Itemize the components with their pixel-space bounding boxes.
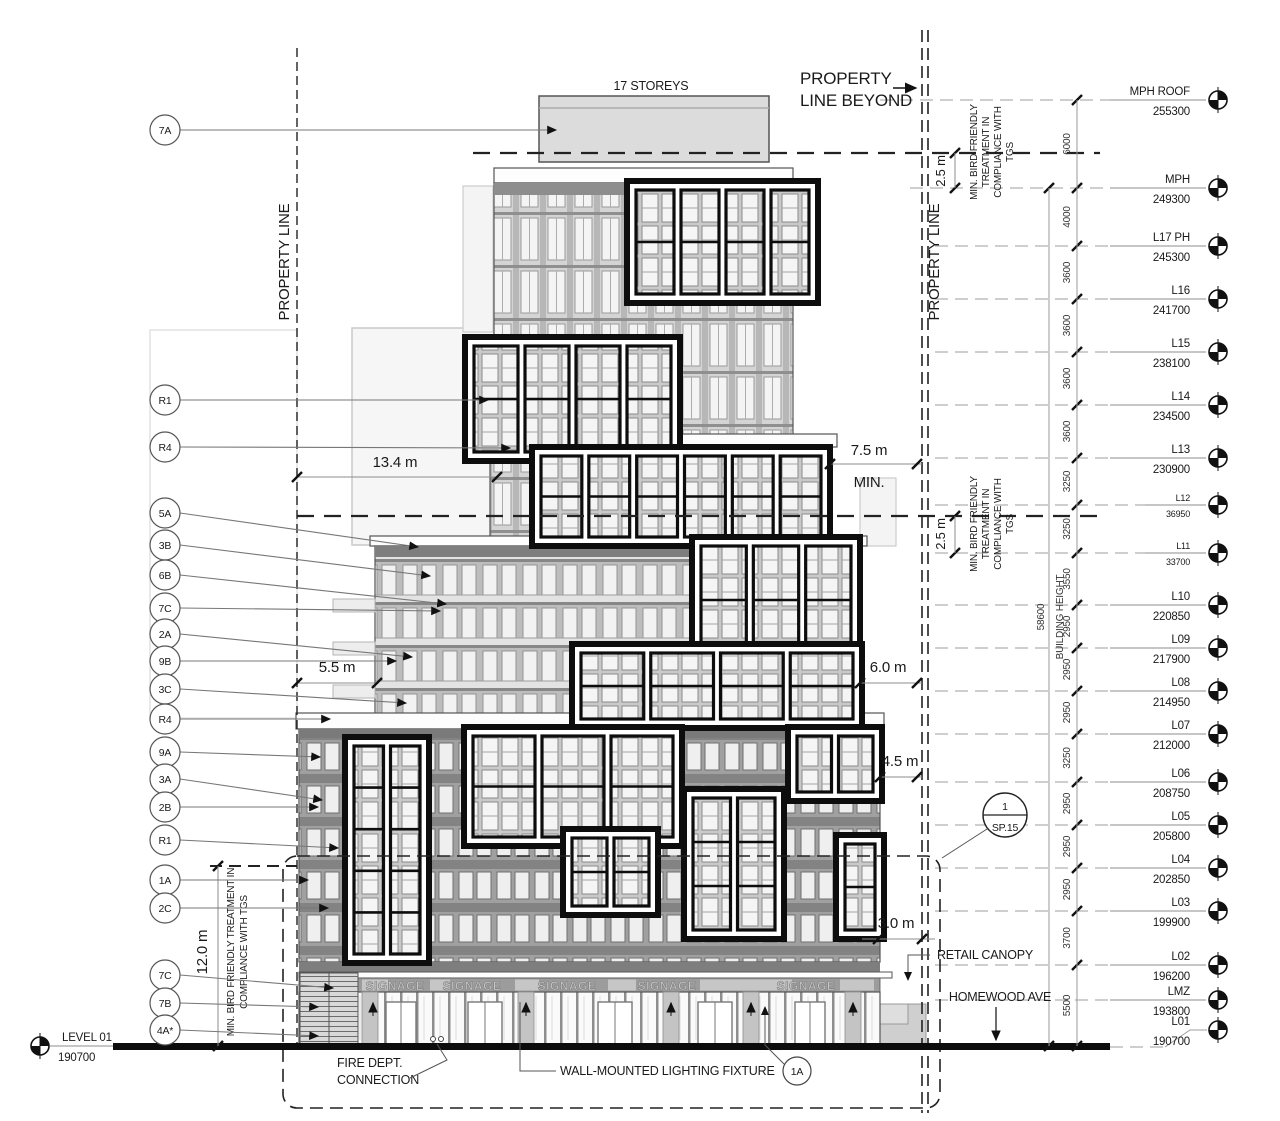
level-elevation: 249300 [1153,194,1190,206]
callout-label: 7C [158,970,172,982]
building-height-value: 58600 [1036,603,1047,630]
level-target-symbol [1209,233,1227,259]
callout-label: 3C [158,684,172,696]
level-elevation: 241700 [1153,305,1190,317]
level-target-symbol [1209,445,1227,471]
feature-frame-panel [693,798,731,930]
floor-dim: 3700 [1062,927,1073,949]
bird-note-mid-4: TGS [1005,513,1016,533]
signage-text: SIGNAGE [777,979,836,993]
floor-dim: 3600 [1062,261,1073,283]
level-elevation: 36950 [1166,509,1190,519]
level-target-symbol [1209,635,1227,661]
section-ref-sheet: SP.15 [992,822,1019,834]
property-line-left-label: PROPERTY LINE [276,203,293,320]
level-elevation: 220850 [1153,611,1190,623]
signage-text: SIGNAGE [638,979,697,993]
feature-frame-panel [839,736,874,792]
bird-note-top-3: COMPLIANCE WITH [993,106,1004,197]
level-target-symbol [1209,987,1227,1013]
dim-13-4: 13.4 m [373,454,418,471]
level-target-symbol [1209,492,1227,518]
level-name: L01 [1171,1016,1190,1028]
bird-note-mid-1: MIN. BIRD FRIENDLY [969,476,980,572]
dim-3-0: 3.0 m [878,915,915,932]
storefront-pier [845,992,861,1047]
level-target-symbol [1209,1017,1227,1043]
signage-light-panel [608,980,636,991]
callout-label: 3A [159,774,172,786]
level-name: L06 [1171,768,1190,780]
level-elevation: 205800 [1153,831,1190,843]
floor-dim: 3600 [1062,420,1073,442]
dim-6-0: 6.0 m [870,659,907,676]
signage-light-panel [515,980,539,991]
level-name: L15 [1171,338,1190,350]
mph-roof-box [539,96,769,162]
feature-frame-panel [354,746,384,954]
level-target-symbol [1209,286,1227,312]
level-name: L13 [1171,444,1190,456]
floor-dim: 3250 [1062,470,1073,492]
level-elevation: 196200 [1153,971,1190,983]
ground-line [113,1043,1110,1050]
balcony-rail [333,685,375,698]
level-target-symbol [1209,392,1227,418]
callout-label: 5A [159,508,172,520]
level-target-symbol [1209,855,1227,881]
retail-canopy-leader [908,955,930,980]
callout-label: 2C [158,903,172,915]
wall-light-label: WALL-MOUNTED LIGHTING FIXTURE [560,1064,775,1078]
dim-2-5-top: 2.5 m [933,155,948,187]
property-line-beyond-label-1: PROPERTY [800,69,892,88]
callout-label: 7C [158,603,172,615]
level-name: L04 [1171,854,1190,866]
fire-dept-label-1: FIRE DEPT. [337,1056,402,1070]
storefront-pier [362,992,378,1047]
level-name: MPH ROOF [1130,86,1191,98]
callout-label: 3B [159,540,172,552]
level-name: L08 [1171,677,1190,689]
level-elevation: 230900 [1153,464,1190,476]
signage-text: SIGNAGE [443,979,502,993]
ghost-balcony [463,186,493,332]
feature-frame-panel [738,798,776,930]
bottom-callout-label: 1A [791,1066,804,1078]
storefront-pier [663,992,679,1047]
building-height-label: BUILDING HEIGHT [1055,575,1066,660]
floor-dim: 3250 [1062,518,1073,540]
level-name: L03 [1171,897,1190,909]
level-elevation: 208750 [1153,788,1190,800]
callout-label: 2B [159,802,172,814]
callout-label: 4A* [157,1025,173,1037]
level01-name: LEVEL 01 [62,1032,112,1044]
callout-label: 9B [159,656,172,668]
floor-dim: 3250 [1062,747,1073,769]
level-elevation: 217900 [1153,654,1190,666]
fire-dept-connection-symbol [439,1037,444,1042]
level-elevation: 202850 [1153,874,1190,886]
property-line-beyond-label-2: LINE BEYOND [800,91,912,110]
dimension-chain: 6000400036003600360036003250325035502950… [1044,95,1082,1051]
level-name: LMZ [1168,986,1191,998]
floor-dim: 6000 [1062,133,1073,155]
level-name: L05 [1171,811,1190,823]
street-label: HOMEWOOD AVE [949,990,1051,1004]
level-elevation: 245300 [1153,252,1190,264]
level-target-symbol [1209,678,1227,704]
level-elevation: 212000 [1153,740,1190,752]
level-name: L10 [1171,591,1190,603]
tower-dark-band [494,183,628,195]
floor-dim: 2950 [1062,835,1073,857]
dim-7-5: 7.5 m [851,442,888,459]
floor-dim: 4000 [1062,206,1073,228]
level-name: L11 [1176,541,1190,551]
bird-note-top-2: TREATMENT IN [981,117,992,188]
retail-canopy-label: RETAIL CANOPY [937,948,1034,962]
level-target-symbol [1209,339,1227,365]
dim-2-5-mid: 2.5 m [933,518,948,550]
level-name: L17 PH [1153,232,1190,244]
floor-dim: 2950 [1062,658,1073,680]
level-name: L07 [1171,720,1190,732]
callout-label: 7A [159,125,172,137]
callout-label: R1 [158,395,171,407]
level-elevation: 199900 [1153,917,1190,929]
building-elevation-svg: MPH ROOF255300MPH249300L17 PH245300L1624… [0,0,1280,1121]
callout-label: R1 [158,835,171,847]
floor-dim: 3600 [1062,314,1073,336]
storeys-label: 17 STOREYS [614,79,689,93]
callout-label: 1A [159,875,172,887]
floor-dim: 2950 [1062,878,1073,900]
floor-dim: 3600 [1062,367,1073,389]
level-elevation: 255300 [1153,106,1190,118]
level-name: L02 [1171,951,1190,963]
retail-canopy-slab [299,972,892,978]
section-ref-number: 1 [1002,801,1008,813]
level-elevation: 234500 [1153,411,1190,423]
callout-label: 6B [159,570,172,582]
level-target-symbol [1209,540,1227,566]
bird-note-mid-2: TREATMENT IN [981,489,992,560]
signage-text: SIGNAGE [538,979,597,993]
property-line-right-label: PROPERTY LINE [926,203,943,320]
level-elevation: 190700 [1153,1036,1190,1048]
bird-note-left-2: COMPLIANCE WITH TGS [239,895,250,1009]
fire-dept-label-2: CONNECTION [337,1073,419,1087]
ghost-low-structure-step [880,1004,908,1024]
level-target-symbol [31,1033,49,1059]
signage-text: SIGNAGE [366,979,425,993]
level-name: MPH [1165,174,1190,186]
level-elevation: 238100 [1153,358,1190,370]
fire-dept-connection-symbol [431,1037,436,1042]
bird-note-top-1: MIN. BIRD FRIENDLY [969,104,980,200]
elevation-drawing-canvas: MPH ROOF255300MPH249300L17 PH245300L1624… [0,0,1280,1121]
feature-frame-panel [797,736,832,792]
storefront-pier [743,992,759,1047]
bird-note-top-4: TGS [1005,141,1016,161]
level-name: L12 [1176,493,1191,503]
building: SIGNAGESIGNAGESIGNAGESIGNAGESIGNAGE [296,96,892,1047]
section-ref-leader [942,829,987,858]
level-name: L14 [1171,391,1190,403]
floor-dim: 5500 [1062,994,1073,1016]
signage-light-panel [840,980,874,991]
level-target-symbol [1209,592,1227,618]
dim-12-0: 12.0 m [194,930,211,975]
bird-note-mid-3: COMPLIANCE WITH [993,478,1004,569]
level-elevation: 214950 [1153,697,1190,709]
feature-frame-panel [391,746,421,954]
level-target-symbol [1209,898,1227,924]
level-target-symbol [1209,87,1227,113]
level01-elevation: 190700 [58,1052,95,1064]
level-name: L09 [1171,634,1190,646]
level-target-symbol [1209,952,1227,978]
dim-7-5-min: MIN. [854,474,885,491]
callout-label: R4 [158,442,171,454]
bird-note-left-1: MIN. BIRD FRIENDLY TREATMENT IN [226,868,237,1036]
level-name: L16 [1171,285,1190,297]
callout-label: 7B [159,998,172,1010]
level-target-symbol [1209,721,1227,747]
level-target-symbol [1209,175,1227,201]
level-target-symbol [1209,769,1227,795]
floor-dim: 2950 [1062,701,1073,723]
callout-label: 9A [159,747,172,759]
callout-label: 2A [159,629,172,641]
callout-label: R4 [158,714,171,726]
level01-marker: LEVEL 01 190700 [31,1032,113,1064]
dim-4-5: 4.5 m [882,753,919,770]
level-target-symbol [1209,812,1227,838]
level-elevation: 33700 [1166,557,1190,567]
floor-dim: 2950 [1062,792,1073,814]
